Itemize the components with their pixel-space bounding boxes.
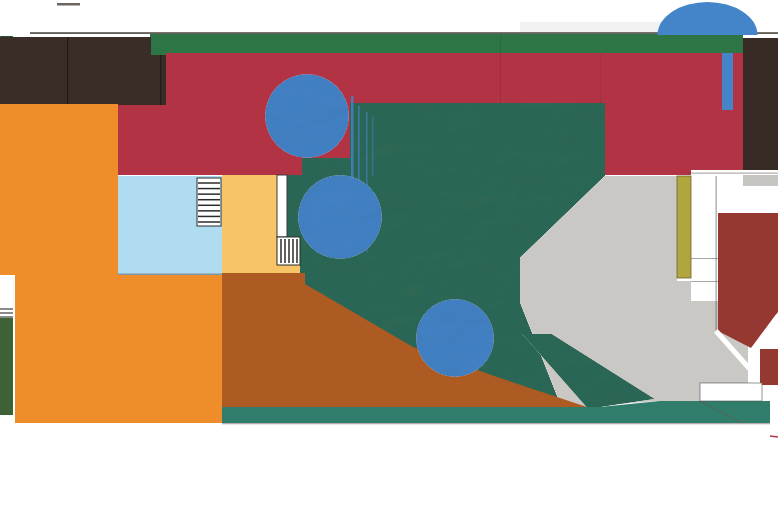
building-gray-ledge bbox=[743, 175, 778, 186]
dome-canopy bbox=[658, 2, 758, 35]
green-square-vent bbox=[151, 37, 166, 55]
roof-edge-line-2 bbox=[770, 436, 778, 437]
orange-court-lower bbox=[15, 275, 222, 423]
green-roof-strip bbox=[150, 34, 743, 53]
site-plan-canvas bbox=[0, 0, 778, 518]
roof-white-band bbox=[700, 383, 762, 401]
roof-brick-east bbox=[760, 349, 778, 385]
tree-canopy-north bbox=[265, 74, 349, 158]
tree-canopy-south bbox=[416, 299, 494, 377]
tree-canopy-mid bbox=[298, 175, 382, 259]
pool-south-edge bbox=[118, 274, 222, 275]
west-green-hedge bbox=[0, 318, 13, 415]
orange-court-upper bbox=[0, 104, 118, 275]
blue-banner bbox=[722, 53, 733, 110]
column-line-h2 bbox=[691, 281, 718, 282]
paint-drip-4 bbox=[372, 116, 373, 176]
building-red-eave-line bbox=[688, 173, 778, 174]
olive-wall bbox=[677, 176, 691, 278]
column-line-h1 bbox=[691, 258, 718, 259]
column-line-v bbox=[716, 176, 717, 330]
yellow-terrace bbox=[222, 175, 278, 273]
dark-roof-seam-1 bbox=[67, 37, 68, 105]
stair-north bbox=[197, 178, 221, 226]
top-edge-tick bbox=[57, 3, 80, 6]
site-plan-drawing bbox=[0, 0, 778, 518]
northeast-dark-block bbox=[743, 38, 778, 170]
sky-shadow-wash bbox=[520, 22, 665, 33]
shape-layer bbox=[0, 2, 778, 437]
dark-roof-block bbox=[0, 37, 166, 105]
white-wall-bar bbox=[277, 175, 287, 237]
south-strip-edge bbox=[222, 423, 770, 424]
